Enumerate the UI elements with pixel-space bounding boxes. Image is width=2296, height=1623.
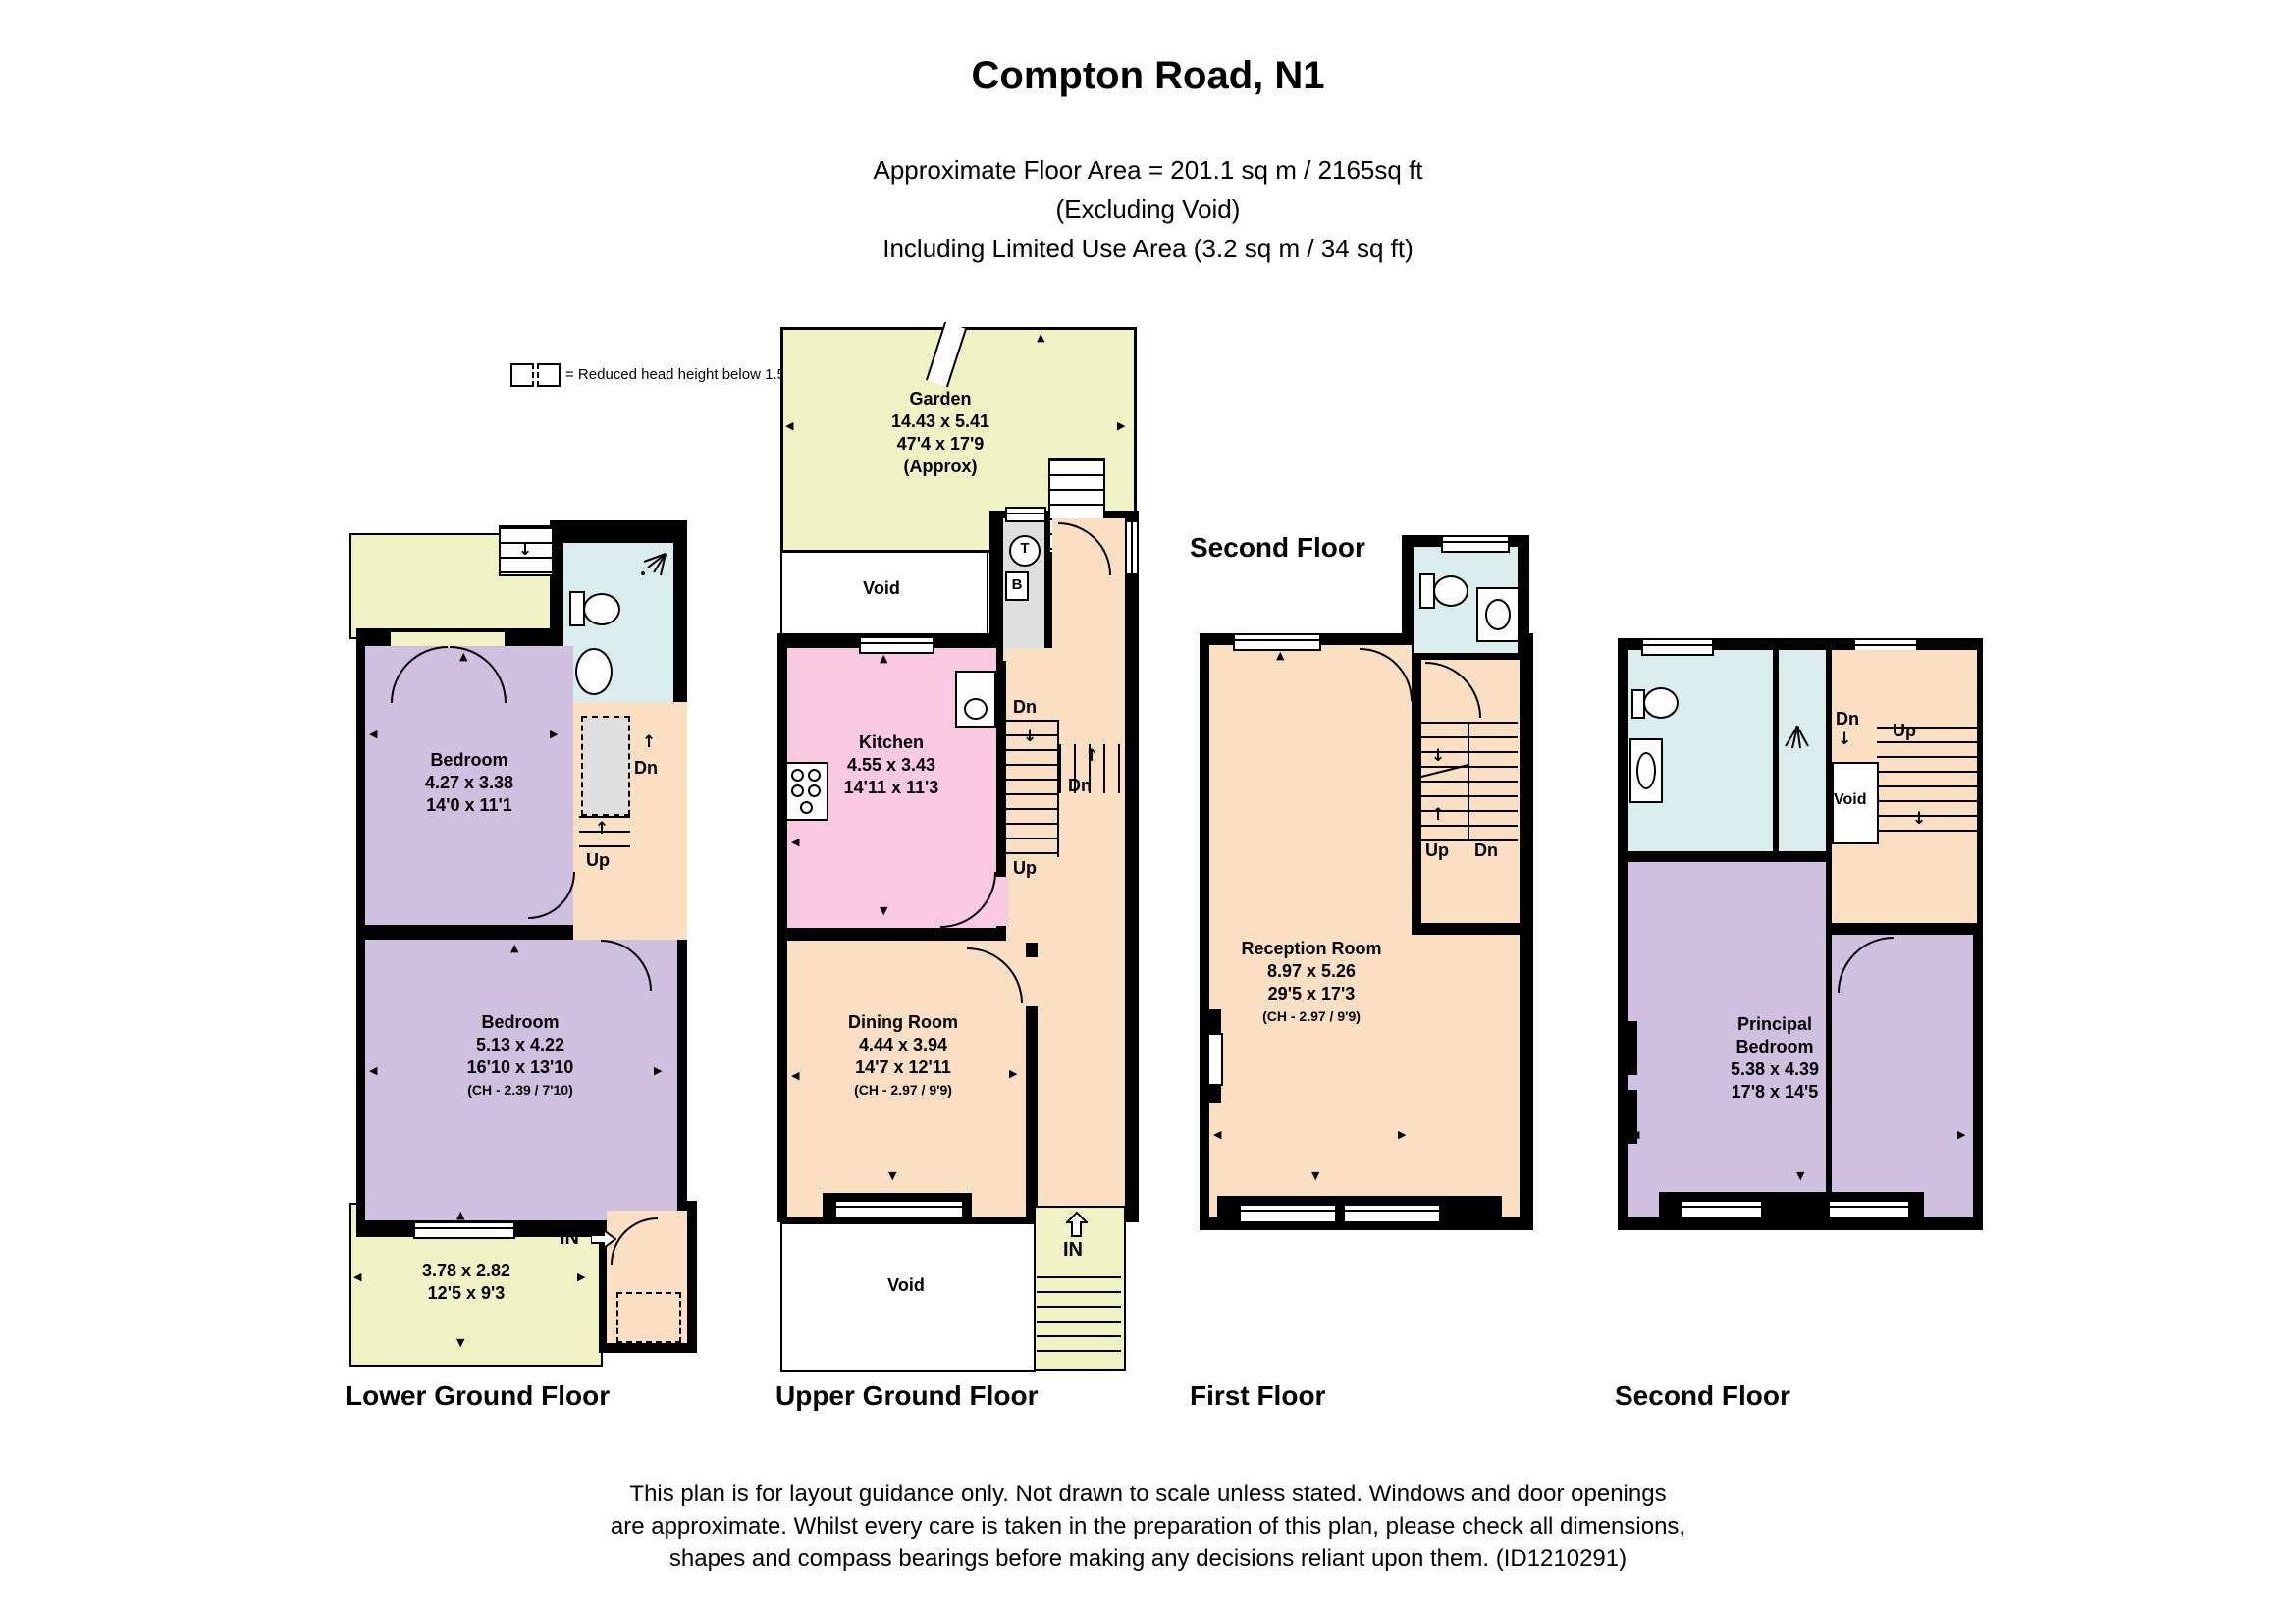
dim-arrow-left-icon <box>785 420 793 431</box>
door-opening <box>573 876 583 923</box>
room-dim-imperial: 14'7 x 12'11 <box>785 1056 1021 1079</box>
boiler-symbol: B <box>1005 571 1029 601</box>
entrance-arrow-icon <box>1066 1212 1088 1237</box>
dim-arrow-down-icon <box>888 1170 896 1181</box>
fireplace-icon <box>1207 1033 1223 1086</box>
tank-symbol: T <box>1009 535 1041 567</box>
boiler-letter: B <box>1012 576 1023 593</box>
reception-room <box>1209 645 1412 1217</box>
kitchen-sink-icon <box>955 671 996 728</box>
page-title: Compton Road, N1 <box>0 54 2296 98</box>
stair-direction-dn: Dn <box>1836 709 1859 730</box>
entrance-in-label: IN <box>1063 1239 1083 1262</box>
dim-arrow-left-icon <box>1631 1129 1639 1140</box>
window-icon <box>1681 1200 1763 1219</box>
window-icon <box>1239 1204 1337 1223</box>
room-ceiling-height: (CH - 2.39 / 7'10) <box>412 1079 628 1102</box>
dim-arrow-left-icon <box>353 1271 361 1282</box>
room-dim-imperial: 12'5 x 9'3 <box>373 1282 560 1305</box>
stair-up-arrow-icon <box>1085 748 1098 765</box>
stair-direction-up: Up <box>1425 840 1449 861</box>
second-floor-note-label: Second Floor <box>1190 532 1365 564</box>
room-dim-metric: 5.38 x 4.39 <box>1667 1058 1883 1081</box>
door-opening <box>391 632 505 646</box>
disclaimer-line1: This plan is for layout guidance only. N… <box>0 1481 2296 1508</box>
shower-icon <box>636 550 669 579</box>
window-icon <box>859 636 934 654</box>
stair-direction-dn: Dn <box>1068 776 1092 796</box>
stair-up-arrow-icon <box>595 821 609 838</box>
void-label: Void <box>1834 791 1866 809</box>
room-name: Reception Room <box>1203 938 1419 960</box>
door-opening <box>1026 957 1040 1006</box>
entrance-in-label: IN <box>560 1227 579 1250</box>
sink-unit-icon <box>1629 738 1663 803</box>
toilet-icon <box>583 593 620 625</box>
sink-icon <box>575 648 613 695</box>
stair-direction-up: Up <box>1013 858 1037 879</box>
dim-arrow-right-icon <box>577 1271 585 1282</box>
sink-unit-icon <box>1476 587 1520 642</box>
room-dim-metric: 3.78 x 2.82 <box>373 1260 560 1282</box>
window-icon <box>1641 638 1714 656</box>
disclaimer-line3: shapes and compass bearings before makin… <box>0 1545 2296 1573</box>
stairs <box>1877 727 1977 842</box>
room-dim-imperial: 16'10 x 13'10 <box>412 1056 628 1079</box>
dim-arrow-left-icon <box>1213 1129 1221 1140</box>
room-dim-metric: 14.43 x 5.41 <box>842 410 1039 433</box>
dim-arrow-right-icon <box>654 1065 662 1076</box>
door-opening <box>994 877 1008 926</box>
window-icon <box>1005 507 1046 522</box>
room-dim-metric: 4.27 x 3.38 <box>381 772 558 794</box>
lower-hall-strip <box>1038 943 1125 1217</box>
room-ceiling-height: (CH - 2.97 / 9'9) <box>785 1079 1021 1102</box>
void-text: Void <box>823 577 940 600</box>
dim-arrow-left-icon <box>369 1065 377 1076</box>
toilet-icon <box>1643 687 1679 719</box>
reception-room-extension <box>1412 935 1520 1217</box>
dim-arrow-left-icon <box>791 837 799 847</box>
sink-bowl-icon <box>1485 599 1511 630</box>
room-label-dining: Dining Room 4.44 x 3.94 14'7 x 12'11 (CH… <box>785 1011 1021 1102</box>
dim-arrow-right-icon <box>1009 1068 1017 1079</box>
hob-ring-icon <box>800 801 813 814</box>
room-name: Garden <box>842 388 1039 410</box>
room-dim-imperial: 29'5 x 17'3 <box>1203 983 1419 1005</box>
dim-arrow-down-icon <box>1796 1170 1804 1181</box>
void-text: Void <box>842 1274 970 1297</box>
dim-arrow-up-icon <box>1037 332 1044 343</box>
disclaimer-line2: are approximate. Whilst every care is ta… <box>0 1513 2296 1541</box>
entrance-arrow-icon <box>591 1229 616 1249</box>
room-name: Kitchen <box>793 731 989 754</box>
legend-label: = Reduced head height below 1.5m <box>565 366 797 383</box>
window-icon <box>1343 1204 1441 1223</box>
reduced-head-height-symbol-icon <box>537 363 561 387</box>
window-icon <box>1828 1200 1910 1219</box>
stair-down-arrow-icon <box>518 542 532 559</box>
room-label-bedroom2: Bedroom 5.13 x 4.22 16'10 x 13'10 (CH - … <box>412 1011 628 1102</box>
dim-arrow-up-icon <box>880 653 887 664</box>
room-dim-imperial: 17'8 x 14'5 <box>1667 1081 1883 1104</box>
window-icon <box>1125 520 1139 575</box>
void-label-top: Void <box>823 577 940 600</box>
dim-arrow-down-icon <box>880 905 887 916</box>
room-name-line1: Principal <box>1667 1013 1883 1036</box>
void-area-bottom <box>780 1222 1036 1372</box>
room-ceiling-height: (CH - 2.97 / 9'9) <box>1203 1005 1419 1028</box>
reduced-head-height-symbol-icon <box>510 363 534 387</box>
tank-letter: T <box>1020 540 1029 557</box>
void-label-bottom: Void <box>842 1274 970 1297</box>
limited-use-line: Including Limited Use Area (3.2 sq m / 3… <box>0 234 2296 264</box>
stair-down-arrow-icon <box>1912 811 1926 828</box>
dim-arrow-right-icon <box>1398 1129 1406 1140</box>
stair-direction-dn: Dn <box>1474 840 1498 861</box>
dim-arrow-up-icon <box>459 651 467 662</box>
room-name: Bedroom <box>381 749 558 772</box>
window-icon <box>834 1200 964 1218</box>
room-dim-imperial: 14'0 x 11'1 <box>381 794 558 817</box>
sink-bowl-icon <box>964 698 988 720</box>
room-label-principal: Principal Bedroom 5.38 x 4.39 17'8 x 14'… <box>1667 1013 1883 1104</box>
floor-area-line: Approximate Floor Area = 201.1 sq m / 21… <box>0 155 2296 186</box>
room-dim-approx: (Approx) <box>842 456 1039 478</box>
hob-icon <box>785 762 828 821</box>
shower-icon <box>1781 725 1814 754</box>
stair-direction-dn: Dn <box>634 758 658 779</box>
stair-direction-dn: Dn <box>1013 697 1037 718</box>
hob-ring-icon <box>791 784 804 797</box>
stair-rail <box>1468 722 1469 841</box>
toilet-icon <box>1433 575 1468 607</box>
room-label-reception: Reception Room 8.97 x 5.26 29'5 x 17'3 (… <box>1203 938 1419 1028</box>
stair-down-arrow-icon <box>1023 729 1037 745</box>
dim-arrow-down-icon <box>456 1337 464 1348</box>
wardrobe-recess <box>1618 1021 1637 1075</box>
reduced-head-height-area <box>616 1292 681 1343</box>
room-label-front-area: 3.78 x 2.82 12'5 x 9'3 <box>373 1260 560 1305</box>
wall-block <box>1773 650 1779 778</box>
dim-arrow-right-icon <box>550 729 558 739</box>
floor-label-lower-ground: Lower Ground Floor <box>346 1380 610 1412</box>
legend: = Reduced head height below 1.5m <box>510 361 805 391</box>
stair-direction-up: Up <box>586 850 610 871</box>
dim-arrow-right-icon <box>1957 1129 1965 1140</box>
room-dim-imperial: 47'4 x 17'9 <box>842 433 1039 456</box>
room-name: Bedroom <box>412 1011 628 1034</box>
floor-label-second: Second Floor <box>1615 1380 1790 1412</box>
dim-arrow-right-icon <box>1117 420 1125 431</box>
hob-ring-icon <box>791 769 804 782</box>
floor-label-upper-ground: Upper Ground Floor <box>775 1380 1039 1412</box>
stair-down-arrow-icon <box>1838 731 1851 748</box>
sink-bowl-icon <box>1636 752 1656 789</box>
dim-arrow-up-icon <box>1276 650 1284 661</box>
room-name-line2: Bedroom <box>1667 1036 1883 1058</box>
floorplan-page: Compton Road, N1 Approximate Floor Area … <box>0 0 2296 1623</box>
dim-arrow-up-icon <box>510 943 518 953</box>
dim-arrow-left-icon <box>791 1070 799 1081</box>
window-icon <box>413 1221 515 1239</box>
room-dim-metric: 4.44 x 3.94 <box>785 1034 1021 1056</box>
excluding-void-line: (Excluding Void) <box>0 194 2296 225</box>
entrance-steps-treads <box>1037 1276 1121 1365</box>
dim-arrow-up-icon <box>456 1210 464 1220</box>
floor-label-first: First Floor <box>1190 1380 1325 1412</box>
window-icon <box>1441 535 1510 553</box>
room-label-bedroom1: Bedroom 4.27 x 3.38 14'0 x 11'1 <box>381 749 558 817</box>
dim-arrow-down-icon <box>1311 1170 1319 1181</box>
stair-up-arrow-icon <box>1431 807 1445 824</box>
room-name: Dining Room <box>785 1011 1021 1034</box>
dim-arrow-left-icon <box>369 729 377 739</box>
reduced-head-height-area <box>581 716 630 816</box>
stair-up-arrow-icon <box>642 734 656 751</box>
stair-down-arrow-icon <box>1431 748 1445 765</box>
hob-ring-icon <box>808 784 821 797</box>
room-dim-metric: 5.13 x 4.22 <box>412 1034 628 1056</box>
room-label-garden: Garden 14.43 x 5.41 47'4 x 17'9 (Approx) <box>842 388 1039 478</box>
room-dim-metric: 8.97 x 5.26 <box>1203 960 1419 983</box>
hob-ring-icon <box>808 769 821 782</box>
